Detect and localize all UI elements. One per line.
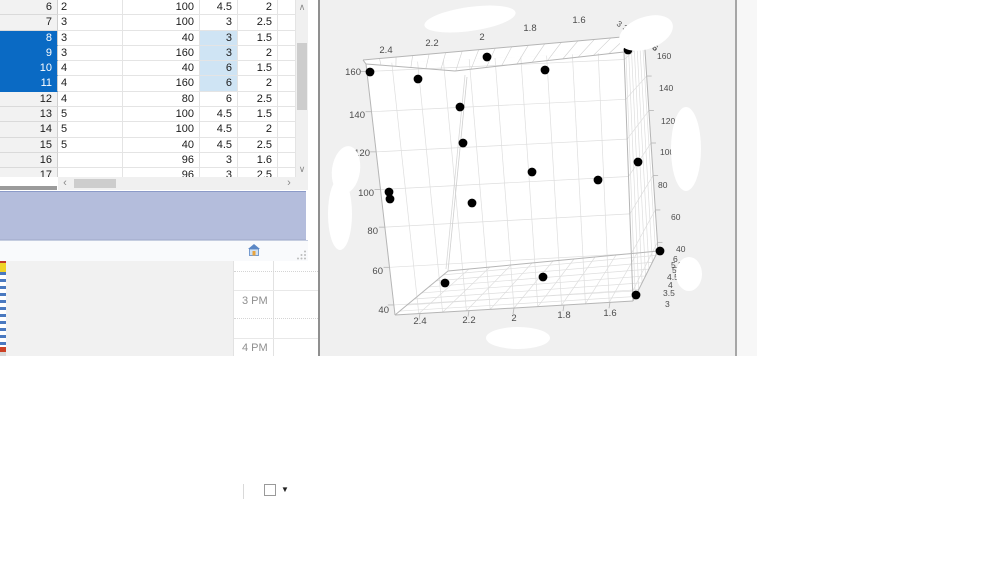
axis-tick-label: 80 xyxy=(658,180,668,190)
data-point[interactable] xyxy=(468,199,477,208)
axis-tick-label: 3 xyxy=(665,299,670,309)
row-number-cell[interactable]: 8 xyxy=(0,31,58,46)
scroll-down-icon[interactable]: ∨ xyxy=(296,165,308,174)
cell-col2[interactable]: 100 xyxy=(123,122,200,137)
redaction-blob xyxy=(423,1,517,38)
data-point[interactable] xyxy=(656,247,665,256)
axis-tick-label: 100 xyxy=(358,188,374,199)
data-point[interactable] xyxy=(456,103,465,112)
cell-col3[interactable]: 6 xyxy=(200,76,238,91)
cell-col1[interactable]: 3 xyxy=(58,31,123,46)
hour-line xyxy=(234,338,318,339)
table-row: 14 5 100 4.5 2 xyxy=(0,122,296,137)
cell-empty xyxy=(278,0,296,15)
redaction-blob xyxy=(671,107,701,191)
cell-empty xyxy=(278,92,296,107)
cell-col1[interactable]: 5 xyxy=(58,107,123,122)
table-status-bar: ▼ xyxy=(0,240,308,261)
cell-col4[interactable]: 2.5 xyxy=(238,15,278,30)
horizontal-scroll-thumb[interactable] xyxy=(74,179,116,188)
cell-col3[interactable]: 6 xyxy=(200,61,238,76)
cell-col4[interactable]: 1.5 xyxy=(238,107,278,122)
cell-empty xyxy=(278,107,296,122)
cell-col4[interactable]: 2.5 xyxy=(238,92,278,107)
axis-tick-label: 1.6 xyxy=(603,308,616,319)
table-side-panel[interactable] xyxy=(0,191,306,240)
data-point[interactable] xyxy=(539,273,548,282)
data-point[interactable] xyxy=(414,75,423,84)
cell-col3[interactable]: 3 xyxy=(200,46,238,61)
cell-col1[interactable]: 3 xyxy=(58,15,123,30)
row-number-cell[interactable]: 16 xyxy=(0,153,58,168)
cell-empty xyxy=(278,61,296,76)
table-end-bar xyxy=(0,186,57,190)
calendar-panel[interactable]: 3 PM 4 PM xyxy=(233,261,318,356)
cell-col1[interactable]: 5 xyxy=(58,122,123,137)
axis-tick-label: 2 xyxy=(511,313,516,324)
cell-col2[interactable]: 160 xyxy=(123,46,200,61)
row-number-cell[interactable]: 6 xyxy=(0,0,58,15)
table-row: 6 2 100 4.5 2 xyxy=(0,0,296,15)
axis-tick-label: 2.4 xyxy=(413,316,426,327)
resize-grip[interactable] xyxy=(296,250,307,261)
cell-col1[interactable]: 4 xyxy=(58,76,123,91)
cell-col1[interactable] xyxy=(58,168,123,177)
axis-tick-label: 160 xyxy=(657,51,671,61)
axis-tick-label: 140 xyxy=(349,110,365,121)
table-row: 15 5 40 4.5 2.5 xyxy=(0,138,296,153)
cell-empty xyxy=(278,122,296,137)
data-point[interactable] xyxy=(483,53,492,62)
time-label-3pm: 3 PM xyxy=(242,295,268,307)
scatterplot-3d[interactable]: 1601601401401201201001008080606040402.42… xyxy=(321,0,735,356)
cell-empty xyxy=(278,168,296,177)
cell-col2[interactable]: 80 xyxy=(123,92,200,107)
data-point[interactable] xyxy=(632,291,641,300)
cell-col4[interactable]: 2.5 xyxy=(238,168,278,177)
axis-tick-label: 2.2 xyxy=(462,315,475,326)
row-number-cell[interactable]: 12 xyxy=(0,92,58,107)
cell-col1[interactable]: 2 xyxy=(58,0,123,15)
row-number-cell[interactable]: 17 xyxy=(0,168,58,177)
axis-tick-label: 60 xyxy=(372,266,383,277)
data-point[interactable] xyxy=(386,195,395,204)
data-table-grid[interactable]: 6 2 100 4.5 2 7 3 100 3 2.5 8 3 40 3 1.5… xyxy=(0,0,296,177)
cell-col2[interactable]: 100 xyxy=(123,15,200,30)
status-separator xyxy=(243,484,244,499)
cell-col3[interactable]: 3 xyxy=(200,168,238,177)
data-point[interactable] xyxy=(541,66,550,75)
cell-empty xyxy=(278,46,296,61)
screenshot-root: 6 2 100 4.5 2 7 3 100 3 2.5 8 3 40 3 1.5… xyxy=(0,0,999,562)
data-point[interactable] xyxy=(366,68,375,77)
scroll-right-icon[interactable]: › xyxy=(284,179,294,188)
redaction-blob xyxy=(486,327,550,349)
cell-col2[interactable]: 100 xyxy=(123,107,200,122)
data-point[interactable] xyxy=(634,158,643,167)
data-point[interactable] xyxy=(594,176,603,185)
axis-tick-label: 6 xyxy=(673,254,678,264)
cell-col4[interactable]: 1.5 xyxy=(238,31,278,46)
taskpane-sliver-header xyxy=(0,261,6,272)
axis-tick-label: 40 xyxy=(676,244,686,254)
white-square-button[interactable] xyxy=(264,484,276,496)
data-table-window: 6 2 100 4.5 2 7 3 100 3 2.5 8 3 40 3 1.5… xyxy=(0,0,308,261)
cell-col4[interactable]: 2.5 xyxy=(238,138,278,153)
cell-empty xyxy=(278,153,296,168)
horizontal-scrollbar[interactable]: ‹ › xyxy=(58,177,296,190)
axis-tick-label: 60 xyxy=(671,212,681,222)
cell-col2[interactable]: 160 xyxy=(123,76,200,91)
cell-col3[interactable]: 3 xyxy=(200,153,238,168)
cell-col3[interactable]: 4.5 xyxy=(200,107,238,122)
vertical-scroll-thumb[interactable] xyxy=(297,43,307,110)
redaction-blob xyxy=(328,178,352,250)
axis-tick-label: 2.2 xyxy=(425,38,438,49)
calendar-gutter-line xyxy=(273,261,274,356)
cell-col4[interactable]: 1.6 xyxy=(238,153,278,168)
cell-empty xyxy=(278,31,296,46)
window-edge-strip xyxy=(737,0,757,356)
axis-tick-label: 140 xyxy=(659,83,673,93)
row-number-cell[interactable]: 10 xyxy=(0,61,58,76)
data-point[interactable] xyxy=(441,279,450,288)
cell-col3[interactable]: 3 xyxy=(200,15,238,30)
cell-col4[interactable]: 1.5 xyxy=(238,61,278,76)
axis-tick-label: 2.4 xyxy=(379,45,392,56)
cell-col3[interactable]: 4.5 xyxy=(200,122,238,137)
cell-col2[interactable]: 40 xyxy=(123,31,200,46)
cell-col4[interactable]: 2 xyxy=(238,46,278,61)
data-point[interactable] xyxy=(459,139,468,148)
row-number-cell[interactable]: 15 xyxy=(0,138,58,153)
axis-tick-label: 40 xyxy=(378,305,389,316)
scatterplot-3d-window[interactable]: 1601601401401201201001008080606040402.42… xyxy=(318,0,737,356)
data-point[interactable] xyxy=(528,168,537,177)
hour-line xyxy=(234,290,318,291)
axis-tick-label: 1.8 xyxy=(523,23,536,34)
cell-col1[interactable]: 5 xyxy=(58,138,123,153)
table-row: 12 4 80 6 2.5 xyxy=(0,92,296,107)
cell-empty xyxy=(278,15,296,30)
cell-col3[interactable]: 4.5 xyxy=(200,138,238,153)
scroll-up-icon[interactable]: ∧ xyxy=(296,3,308,12)
table-row: 11 4 160 6 2 xyxy=(0,76,296,91)
table-row: 7 3 100 3 2.5 xyxy=(0,15,296,30)
vertical-scrollbar[interactable]: ∧ ∨ xyxy=(296,0,308,177)
axis-tick-label: 80 xyxy=(367,226,378,237)
cell-empty xyxy=(278,76,296,91)
dropdown-arrow-icon[interactable]: ▼ xyxy=(279,484,291,496)
cell-col1[interactable]: 4 xyxy=(58,61,123,76)
row-number-cell[interactable]: 9 xyxy=(0,46,58,61)
taskpane-sliver xyxy=(0,261,6,356)
axis-tick-label: 120 xyxy=(661,116,675,126)
axis-tick-label: 1.8 xyxy=(557,310,570,321)
cell-col2[interactable]: 100 xyxy=(123,0,200,15)
cell-col2[interactable]: 40 xyxy=(123,61,200,76)
table-row: 10 4 40 6 1.5 xyxy=(0,61,296,76)
redaction-blob xyxy=(676,257,702,291)
scroll-left-icon[interactable]: ‹ xyxy=(60,179,70,188)
cell-col3[interactable]: 3 xyxy=(200,31,238,46)
cell-col4[interactable]: 2 xyxy=(238,122,278,137)
cell-empty xyxy=(278,138,296,153)
row-number-cell[interactable]: 11 xyxy=(0,76,58,91)
axis-tick-label: 2 xyxy=(479,32,484,43)
axis-tick-label: 1.6 xyxy=(572,15,585,26)
taskpane-sliver-gray xyxy=(0,352,6,356)
cell-col3[interactable]: 4.5 xyxy=(200,0,238,15)
background-window xyxy=(6,261,233,356)
table-row: 16 96 3 1.6 xyxy=(0,153,296,168)
cell-col4[interactable]: 2 xyxy=(238,0,278,15)
row-number-cell[interactable]: 13 xyxy=(0,107,58,122)
cell-col4[interactable]: 2 xyxy=(238,76,278,91)
table-row: 9 3 160 3 2 xyxy=(0,46,296,61)
cell-col1[interactable] xyxy=(58,153,123,168)
cell-col1[interactable]: 4 xyxy=(58,92,123,107)
table-row: 13 5 100 4.5 1.5 xyxy=(0,107,296,122)
cell-col2[interactable]: 40 xyxy=(123,138,200,153)
cell-col3[interactable]: 6 xyxy=(200,92,238,107)
home-icon[interactable] xyxy=(248,244,260,256)
half-hour-line xyxy=(234,318,318,319)
row-number-cell[interactable]: 7 xyxy=(0,15,58,30)
row-number-cell[interactable]: 14 xyxy=(0,122,58,137)
cell-col1[interactable]: 3 xyxy=(58,46,123,61)
table-row: 8 3 40 3 1.5 xyxy=(0,31,296,46)
half-hour-line xyxy=(234,271,318,272)
cell-col2[interactable]: 96 xyxy=(123,153,200,168)
time-label-4pm: 4 PM xyxy=(242,342,268,354)
scrollbar-corner xyxy=(296,177,308,190)
cell-col2[interactable]: 96 xyxy=(123,168,200,177)
axis-tick-label: 160 xyxy=(345,67,361,78)
table-row: 17 96 3 2.5 xyxy=(0,168,296,177)
